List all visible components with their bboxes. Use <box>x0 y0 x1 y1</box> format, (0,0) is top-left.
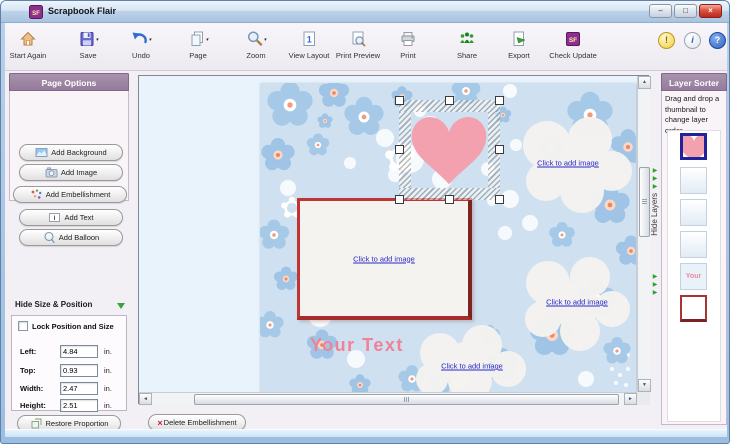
magnifier-icon <box>246 30 264 50</box>
layer-thumbnail-2[interactable] <box>680 167 707 194</box>
print-preview-icon <box>349 30 367 50</box>
title-bar: SF Scrapbook Flair – □ × <box>1 1 730 23</box>
size-position-header: Hide Size & Position <box>15 300 127 312</box>
main-toolbar: Start Again ▾ Save ▾ Undo ▾ Page ▾ Zoom … <box>5 23 727 71</box>
scroll-right-icon: ► <box>628 396 633 402</box>
resize-handle-s[interactable] <box>445 195 454 204</box>
lock-checkbox[interactable] <box>18 321 28 331</box>
resize-handle-e[interactable] <box>495 145 504 154</box>
hide-layers-label[interactable]: Hide Layers <box>650 193 659 236</box>
layer-thumbnail-frame[interactable] <box>680 295 707 322</box>
green-arrow-icon: ▶ <box>649 273 661 281</box>
sparkle-dots-icon <box>30 188 43 201</box>
left-field-row: Left: in. <box>12 345 128 358</box>
heart-thumb-icon <box>680 133 707 160</box>
size-position-panel: Lock Position and Size Left: in. Top: in… <box>11 315 127 411</box>
layer-sorter-panel: Layer Sorter Drag and drop a thumbnail t… <box>661 73 727 425</box>
layer-sorter-header: Layer Sorter <box>661 73 727 91</box>
layer-thumbnail-heart[interactable] <box>680 133 707 160</box>
resize-handle-w[interactable] <box>395 145 404 154</box>
toolbar-button-print-preview[interactable]: Print Preview <box>331 30 385 60</box>
toolbar-button-save[interactable]: ▾ Save <box>61 30 115 60</box>
export-icon <box>510 30 528 50</box>
add-embellishment-button[interactable]: Add Embellishment <box>13 186 127 203</box>
pages-icon <box>188 30 206 50</box>
bottom-bar: × Delete Embellishment <box>5 404 661 429</box>
width-input[interactable] <box>60 382 98 395</box>
toolbar-button-view-layout[interactable]: 1 View Layout <box>282 30 336 60</box>
resize-handle-nw[interactable] <box>395 96 404 105</box>
top-field-row: Top: in. <box>12 364 128 377</box>
window-title: Scrapbook Flair <box>48 6 116 16</box>
help-button[interactable]: ? <box>709 32 726 49</box>
green-arrow-icon: ▶ <box>649 289 661 297</box>
photo-frame[interactable]: Click to add image <box>297 198 472 320</box>
tip-button[interactable]: ! <box>658 32 675 49</box>
minimize-icon: – <box>658 6 662 15</box>
scroll-down-icon: ▼ <box>642 382 647 388</box>
client-area: Start Again ▾ Save ▾ Undo ▾ Page ▾ Zoom … <box>5 23 727 437</box>
home-icon <box>19 30 37 50</box>
width-field-row: Width: in. <box>12 382 128 395</box>
toolbar-button-start-again[interactable]: Start Again <box>1 30 55 60</box>
save-floppy-icon <box>78 30 96 50</box>
toolbar-button-page[interactable]: ▾ Page <box>171 30 225 60</box>
layer-thumbnail-4[interactable] <box>680 231 707 258</box>
collapse-arrow-icon[interactable] <box>117 303 125 309</box>
scrapbook-page[interactable]: Click to add image Click to add image Cl… <box>260 83 636 392</box>
svg-text:SF: SF <box>32 11 40 17</box>
layer-up-arrows[interactable]: ▶ ▶ ▶ <box>649 167 661 191</box>
add-image-link-bottom[interactable]: Click to add image <box>441 362 503 371</box>
your-text-element[interactable]: Your Text <box>310 335 404 356</box>
check-update-icon: SF <box>564 30 582 50</box>
hide-layers-bar[interactable]: ▶ ▶ ▶ Hide Layers ▶ ▶ ▶ <box>649 75 661 404</box>
undo-icon <box>131 30 149 50</box>
toolbar-button-print[interactable]: Print <box>381 30 435 60</box>
maximize-button[interactable]: □ <box>674 4 697 18</box>
scroll-up-icon: ▲ <box>642 79 647 85</box>
green-arrow-icon: ▶ <box>649 183 661 191</box>
minimize-button[interactable]: – <box>649 4 672 18</box>
thumbnail-strip: Your <box>667 130 721 422</box>
status-bar <box>5 429 727 437</box>
green-arrow-icon: ▶ <box>649 167 661 175</box>
heart-embellishment[interactable] <box>408 105 490 193</box>
close-icon: × <box>708 6 713 15</box>
left-input[interactable] <box>60 345 98 358</box>
balloon-icon <box>43 231 56 244</box>
toolbar-button-undo[interactable]: ▾ Undo <box>114 30 168 60</box>
toolbar-button-zoom[interactable]: ▾ Zoom <box>229 30 283 60</box>
info-icon: i <box>691 35 694 45</box>
svg-text:I: I <box>54 215 56 222</box>
selection-box[interactable] <box>399 100 500 200</box>
scroll-left-icon: ◄ <box>143 396 148 402</box>
layer-thumbnail-3[interactable] <box>680 199 707 226</box>
dropdown-icon: ▾ <box>264 37 267 43</box>
text-box-icon: I <box>48 211 61 224</box>
info-button[interactable]: i <box>684 32 701 49</box>
resize-handle-sw[interactable] <box>395 195 404 204</box>
page-options-header: Page Options <box>9 73 129 91</box>
svg-text:1: 1 <box>307 35 312 45</box>
page-options-panel: Page Options <box>9 73 129 201</box>
add-text-button[interactable]: I Add Text <box>19 209 123 226</box>
dropdown-icon: ▾ <box>96 37 99 43</box>
canvas-viewport: Click to add image Click to add image Cl… <box>138 75 649 404</box>
dropdown-icon: ▾ <box>206 37 209 43</box>
layer-down-arrows[interactable]: ▶ ▶ ▶ <box>649 273 661 297</box>
add-background-button[interactable]: Add Background <box>19 144 123 161</box>
add-balloon-button[interactable]: Add Balloon <box>19 229 123 246</box>
add-image-button[interactable]: Add Image <box>19 164 123 181</box>
add-image-link-center[interactable]: Click to add image <box>353 254 415 263</box>
maximize-icon: □ <box>683 6 688 15</box>
view-layout-icon: 1 <box>300 30 318 50</box>
printer-icon <box>399 30 417 50</box>
resize-handle-ne[interactable] <box>495 96 504 105</box>
tip-icon: ! <box>665 35 668 45</box>
top-input[interactable] <box>60 364 98 377</box>
toolbar-button-check-update[interactable]: SF Check Update <box>543 30 603 60</box>
layer-thumbnail-text[interactable]: Your <box>680 263 707 290</box>
resize-handle-n[interactable] <box>445 96 454 105</box>
background-icon <box>35 146 48 159</box>
lock-row: Lock Position and Size <box>18 321 114 331</box>
add-image-link-top-right[interactable]: Click to add image <box>537 159 599 168</box>
toolbar-button-export[interactable]: Export <box>492 30 546 60</box>
dropdown-icon: ▾ <box>149 37 152 43</box>
close-button[interactable]: × <box>699 4 722 18</box>
delete-x-icon: × <box>157 418 162 428</box>
app-window: SF Scrapbook Flair – □ × Start Again ▾ S… <box>0 0 730 444</box>
help-icon: ? <box>715 35 721 45</box>
resize-handle-se[interactable] <box>495 195 504 204</box>
green-arrow-icon: ▶ <box>649 281 661 289</box>
share-people-icon <box>458 30 476 50</box>
camera-icon <box>45 166 58 179</box>
svg-text:SF: SF <box>569 37 577 44</box>
app-icon: SF <box>29 5 43 19</box>
green-arrow-icon: ▶ <box>649 175 661 183</box>
add-image-link-right[interactable]: Click to add image <box>546 298 608 307</box>
toolbar-button-share[interactable]: Share <box>440 30 494 60</box>
